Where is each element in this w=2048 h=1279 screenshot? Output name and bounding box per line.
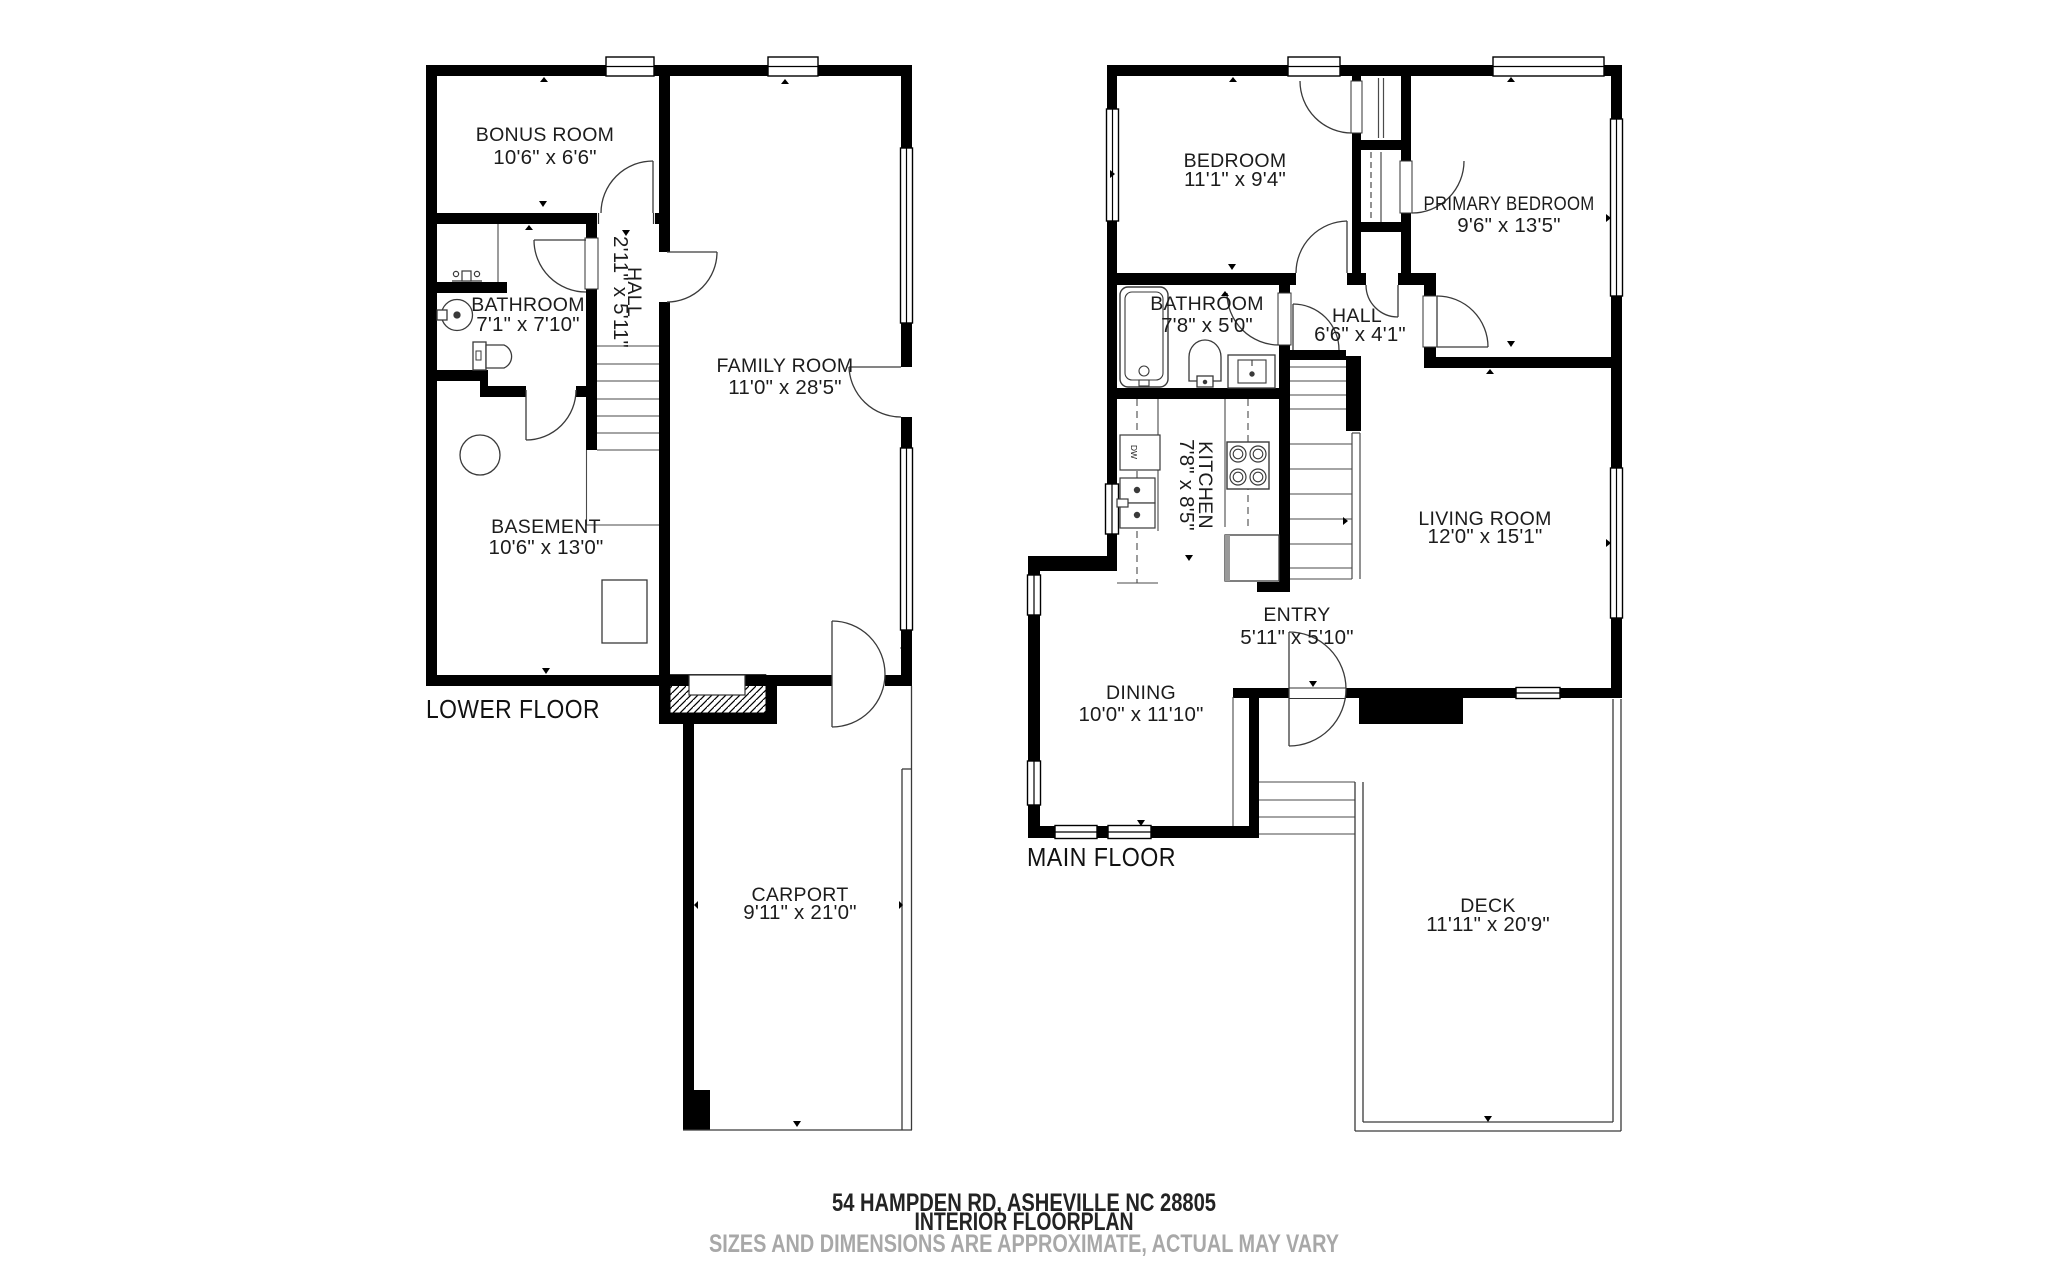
svg-text:10'6" x 6'6": 10'6" x 6'6" bbox=[493, 146, 596, 169]
svg-text:SIZES AND DIMENSIONS ARE APPRO: SIZES AND DIMENSIONS ARE APPROXIMATE, AC… bbox=[709, 1230, 1339, 1258]
svg-text:LOWER FLOOR: LOWER FLOOR bbox=[426, 694, 600, 724]
svg-text:12'0" x 15'1": 12'0" x 15'1" bbox=[1427, 525, 1542, 548]
svg-text:2'11" x 5'11": 2'11" x 5'11" bbox=[609, 236, 632, 348]
svg-text:FAMILY ROOM: FAMILY ROOM bbox=[717, 355, 854, 377]
svg-text:5'11" x 5'10": 5'11" x 5'10" bbox=[1240, 626, 1354, 649]
svg-text:PRIMARY BEDROOM: PRIMARY BEDROOM bbox=[1424, 193, 1595, 215]
svg-text:11'1" x 9'4": 11'1" x 9'4" bbox=[1184, 168, 1286, 191]
svg-text:9'6" x 13'5": 9'6" x 13'5" bbox=[1457, 214, 1560, 237]
svg-text:9'11" x 21'0": 9'11" x 21'0" bbox=[743, 901, 857, 924]
svg-text:6'6" x 4'1": 6'6" x 4'1" bbox=[1314, 323, 1406, 346]
svg-text:10'0" x 11'10": 10'0" x 11'10" bbox=[1078, 703, 1203, 726]
svg-text:ENTRY: ENTRY bbox=[1263, 604, 1330, 626]
svg-text:7'8" x 8'5": 7'8" x 8'5" bbox=[1175, 439, 1198, 531]
svg-text:11'0" x 28'5": 11'0" x 28'5" bbox=[728, 376, 842, 399]
svg-text:DW: DW bbox=[1129, 445, 1139, 459]
svg-text:7'1" x 7'10": 7'1" x 7'10" bbox=[476, 313, 579, 336]
svg-text:MAIN FLOOR: MAIN FLOOR bbox=[1027, 842, 1176, 872]
svg-text:11'11" x 20'9": 11'11" x 20'9" bbox=[1426, 913, 1550, 936]
svg-text:BASEMENT: BASEMENT bbox=[491, 516, 601, 538]
svg-text:BATHROOM: BATHROOM bbox=[1150, 293, 1264, 315]
svg-text:BONUS ROOM: BONUS ROOM bbox=[476, 124, 614, 146]
svg-text:7'8" x 5'0": 7'8" x 5'0" bbox=[1161, 314, 1253, 337]
svg-text:DINING: DINING bbox=[1106, 682, 1176, 704]
svg-text:10'6" x 13'0": 10'6" x 13'0" bbox=[488, 536, 603, 559]
